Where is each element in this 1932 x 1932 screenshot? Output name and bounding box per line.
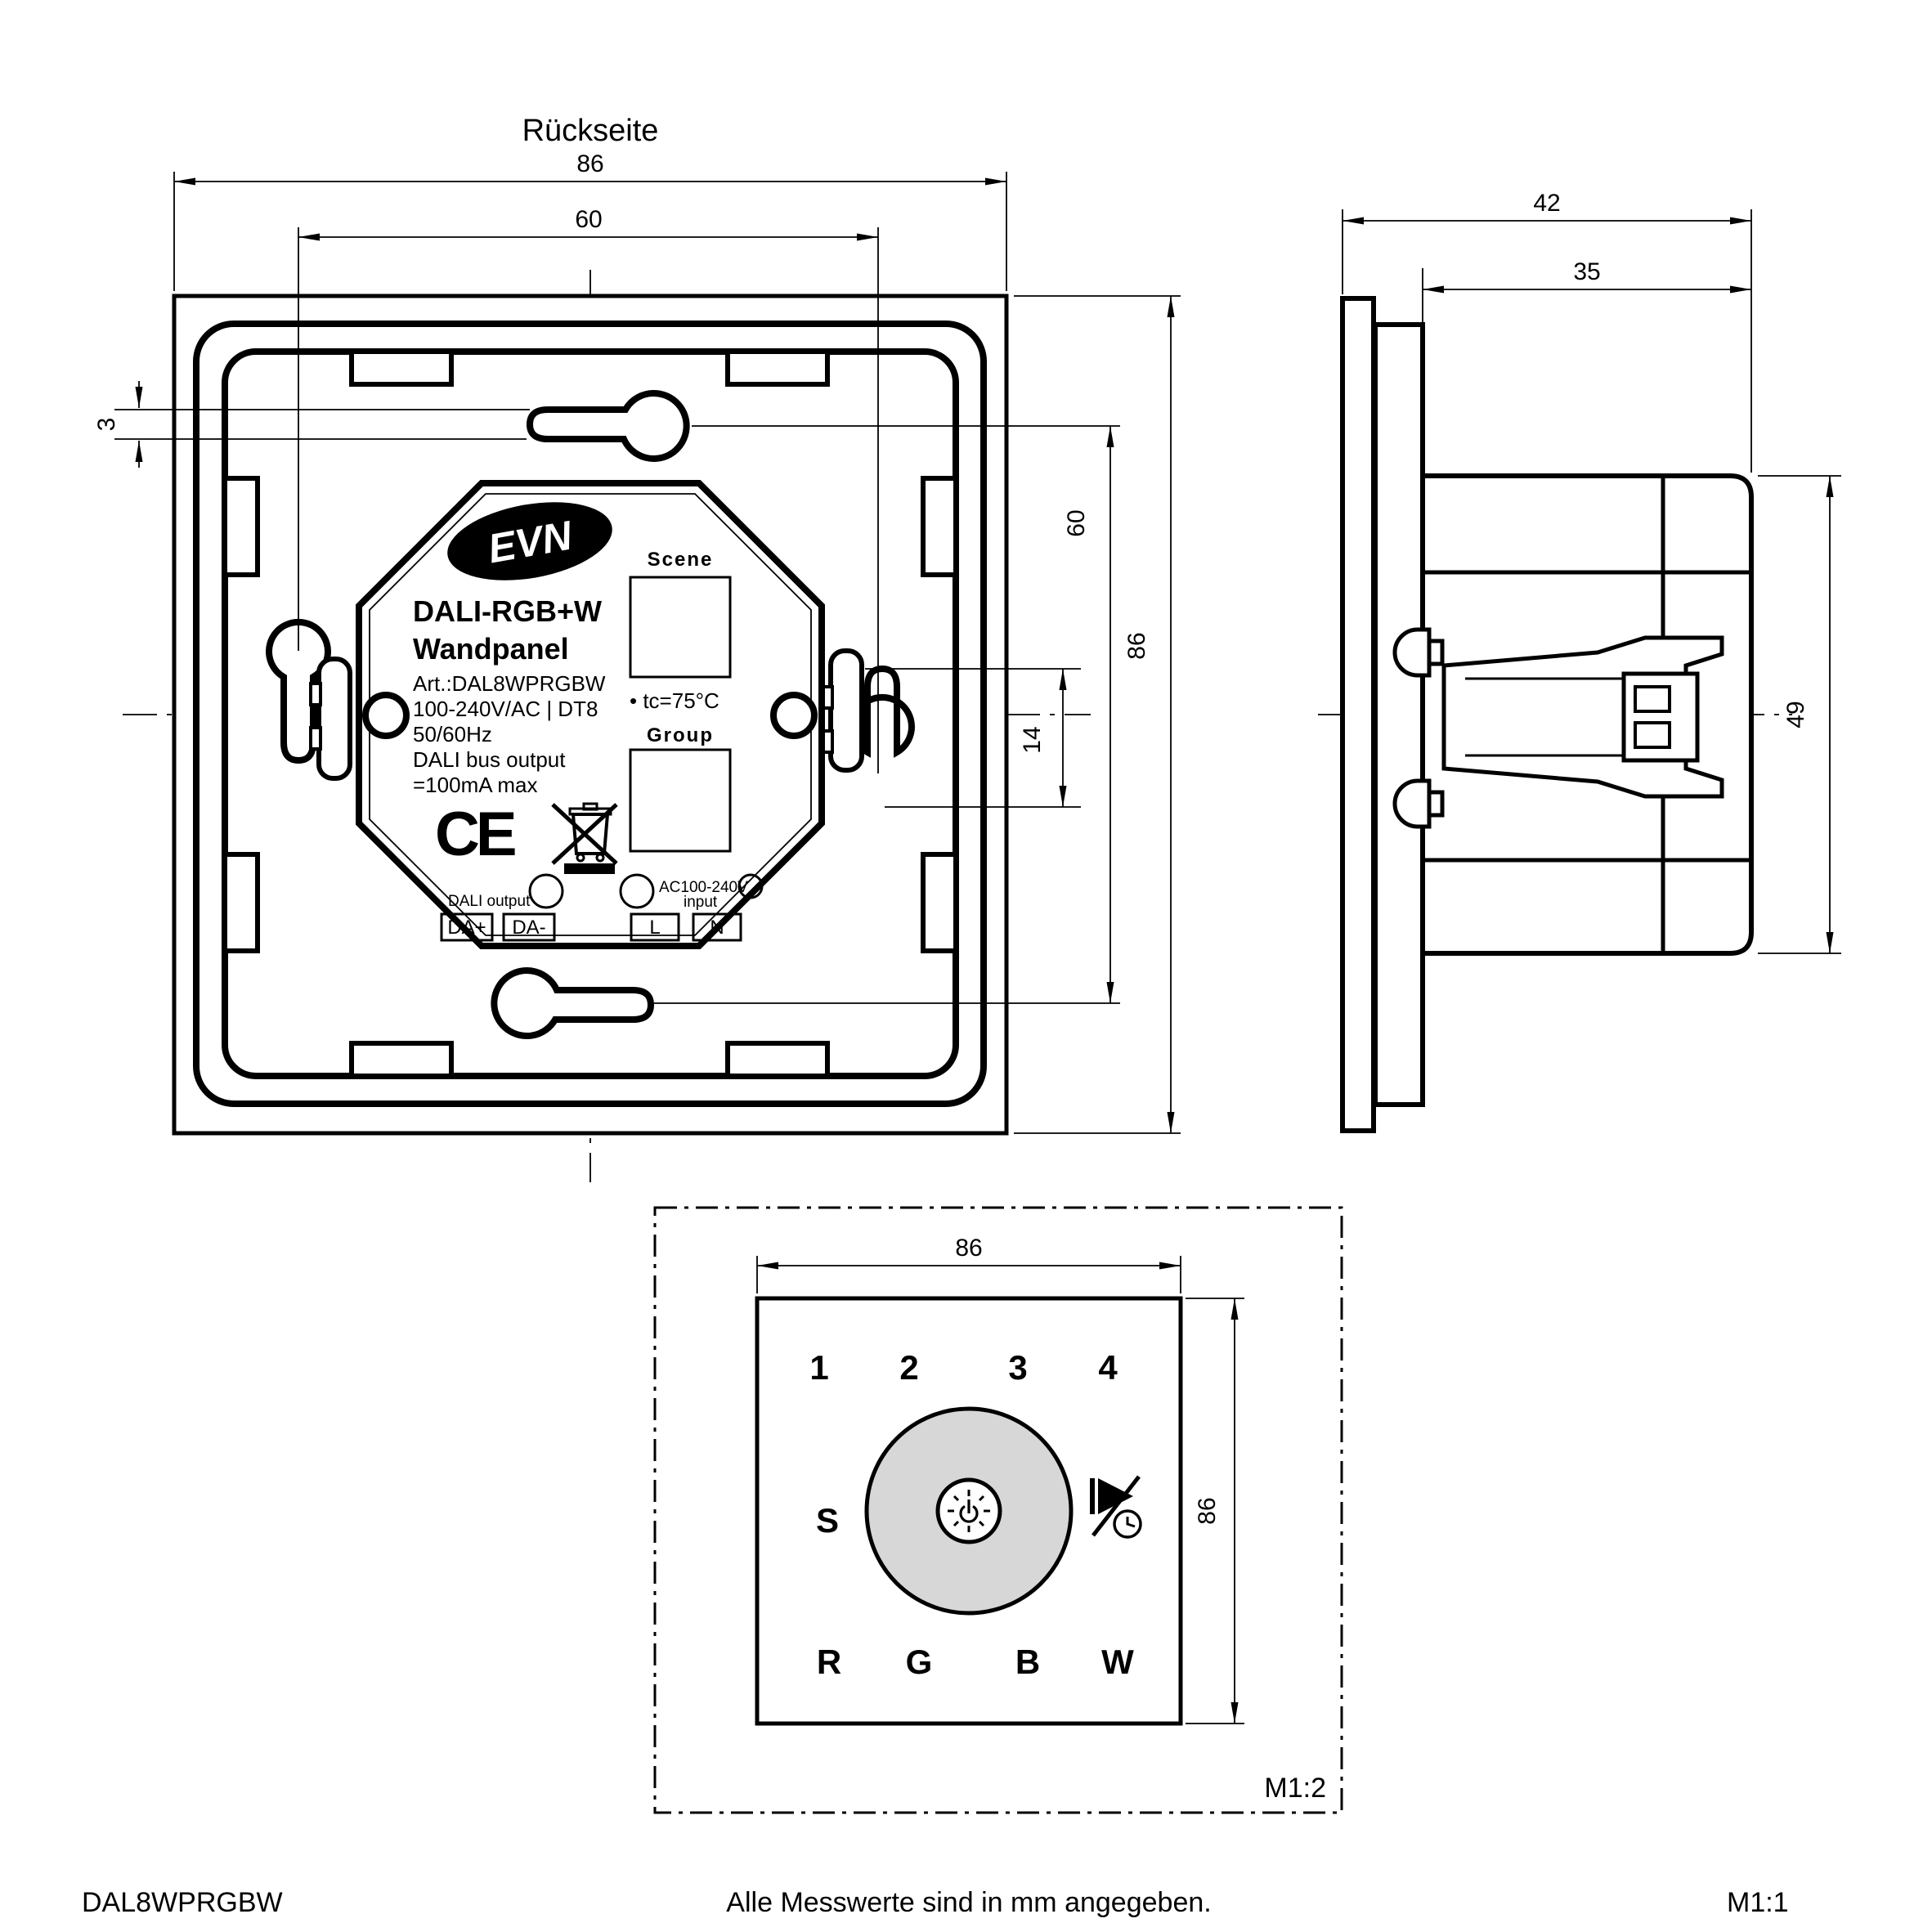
product-name-line1: DALI-RGB+W xyxy=(413,594,602,628)
view-title-rueckseite: Rückseite xyxy=(522,114,659,148)
dim-keyhole-length: 14 xyxy=(1019,726,1046,753)
terminal-n: N xyxy=(710,917,724,939)
product-label: EVN DALI-RGB+W Wandpanel Art.:DAL8WPRGBW… xyxy=(359,483,822,946)
back-view: EVN DALI-RGB+W Wandpanel Art.:DAL8WPRGBW… xyxy=(93,150,1181,1182)
front-view-scale: M1:2 xyxy=(1264,1773,1326,1804)
claw-arm xyxy=(1444,638,1722,796)
front-view: 1 2 3 4 S xyxy=(655,1208,1342,1813)
spec-line-current: =100mA max xyxy=(413,773,537,797)
scene-label: Scene xyxy=(648,549,714,571)
technical-drawing: Rückseite xyxy=(0,0,1932,1932)
dim-back-height: 86 xyxy=(1123,632,1150,659)
button-scene-3: 3 xyxy=(1008,1348,1027,1387)
mount-frame-profile xyxy=(1375,325,1423,1105)
dim-front-width: 86 xyxy=(955,1235,982,1262)
screw-hole-left xyxy=(365,695,406,736)
footer-note: Alle Messwerte sind in mm angegeben. xyxy=(726,1887,1211,1918)
dim-back-width: 86 xyxy=(576,150,603,177)
button-w: W xyxy=(1101,1643,1134,1681)
ce-mark: CE xyxy=(435,800,515,869)
terminal-da-plus: DA+ xyxy=(447,917,486,939)
dim-body-height: 49 xyxy=(1782,701,1809,728)
dali-output-label: DALI output xyxy=(448,893,531,910)
side-view: 42 35 49 xyxy=(1318,190,1841,1131)
dim-mount-spacing-h: 60 xyxy=(575,206,602,233)
dim-total-depth: 42 xyxy=(1533,190,1560,217)
button-scene-1: 1 xyxy=(809,1348,828,1387)
terminal-da-minus: DA- xyxy=(512,917,545,939)
button-scene-4: 4 xyxy=(1098,1348,1118,1387)
spec-line-bus: DALI bus output xyxy=(413,747,566,772)
spec-line-voltage: 100-240V/AC | DT8 xyxy=(413,697,598,721)
dim-slot-height: 3 xyxy=(93,418,120,432)
spec-line-frequency: 50/60Hz xyxy=(413,722,492,746)
tc-note: • tc=75°C xyxy=(630,688,719,713)
button-g: G xyxy=(906,1643,933,1681)
terminal-l: L xyxy=(649,917,660,939)
rotary-dial xyxy=(867,1409,1071,1613)
footer-article-number: DAL8WPRGBW xyxy=(82,1887,283,1918)
button-s: S xyxy=(816,1501,839,1540)
button-scene-2: 2 xyxy=(899,1348,918,1387)
product-name-line2: Wandpanel xyxy=(413,632,569,666)
screw-hole-right xyxy=(773,695,814,736)
input-label: input xyxy=(684,894,718,911)
dim-mount-spacing-v: 60 xyxy=(1063,509,1090,536)
group-label: Group xyxy=(647,724,714,746)
footer: DAL8WPRGBW Alle Messwerte sind in mm ang… xyxy=(82,1887,1789,1918)
dim-box-depth: 35 xyxy=(1573,258,1600,285)
spec-line-article: Art.:DAL8WPRGBW xyxy=(413,671,606,696)
dim-front-height: 86 xyxy=(1194,1497,1221,1524)
footer-scale: M1:1 xyxy=(1727,1887,1789,1918)
button-b: B xyxy=(1015,1643,1040,1681)
front-plate-profile xyxy=(1343,298,1374,1131)
button-r: R xyxy=(817,1643,841,1681)
